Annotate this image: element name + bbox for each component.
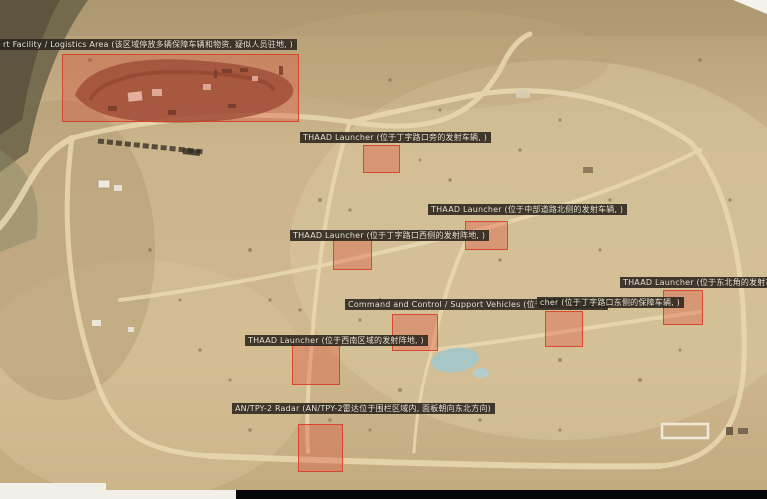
thaad-launcher-center-east-label: THAAD Launcher (位于中部道路北侧的发射车辆, ): [428, 204, 627, 215]
support-facility-logistics-area-box: [62, 54, 299, 122]
top-right-edge-strip: [733, 0, 767, 14]
launcher-east-label: cher (位于丁字路口东侧的保障车辆, ): [537, 297, 684, 308]
an-tpy-2-radar-label: AN/TPY-2 Radar (AN/TPY-2雷达位于围栏区域内, 面板朝向东…: [232, 403, 495, 414]
launcher-east-box: [545, 311, 583, 347]
thaad-launcher-southwest-box: [292, 345, 340, 385]
support-facility-logistics-area-label: rt Facility / Logistics Area (该区域停放多辆保障车…: [0, 39, 297, 50]
annotated-satellite-image: rt Facility / Logistics Area (该区域停放多辆保障车…: [0, 0, 767, 499]
thaad-launcher-center-west-label: THAAD Launcher (位于丁字路口西侧的发射阵地, ): [290, 230, 489, 241]
thaad-launcher-north-box: [363, 145, 400, 173]
bottom-white-strip: [0, 490, 238, 499]
an-tpy-2-radar-box: [298, 424, 343, 472]
thaad-launcher-center-west-box: [333, 237, 372, 270]
thaad-launcher-southwest-label: THAAD Launcher (位于西南区域的发射阵地, ): [245, 335, 428, 346]
thaad-launcher-northeast-label: THAAD Launcher (位于东北角的发射车辆, ): [620, 277, 767, 288]
thaad-launcher-north-label: THAAD Launcher (位于丁字路口旁的发射车辆, ): [300, 132, 491, 143]
bottom-black-bar: [236, 490, 767, 499]
